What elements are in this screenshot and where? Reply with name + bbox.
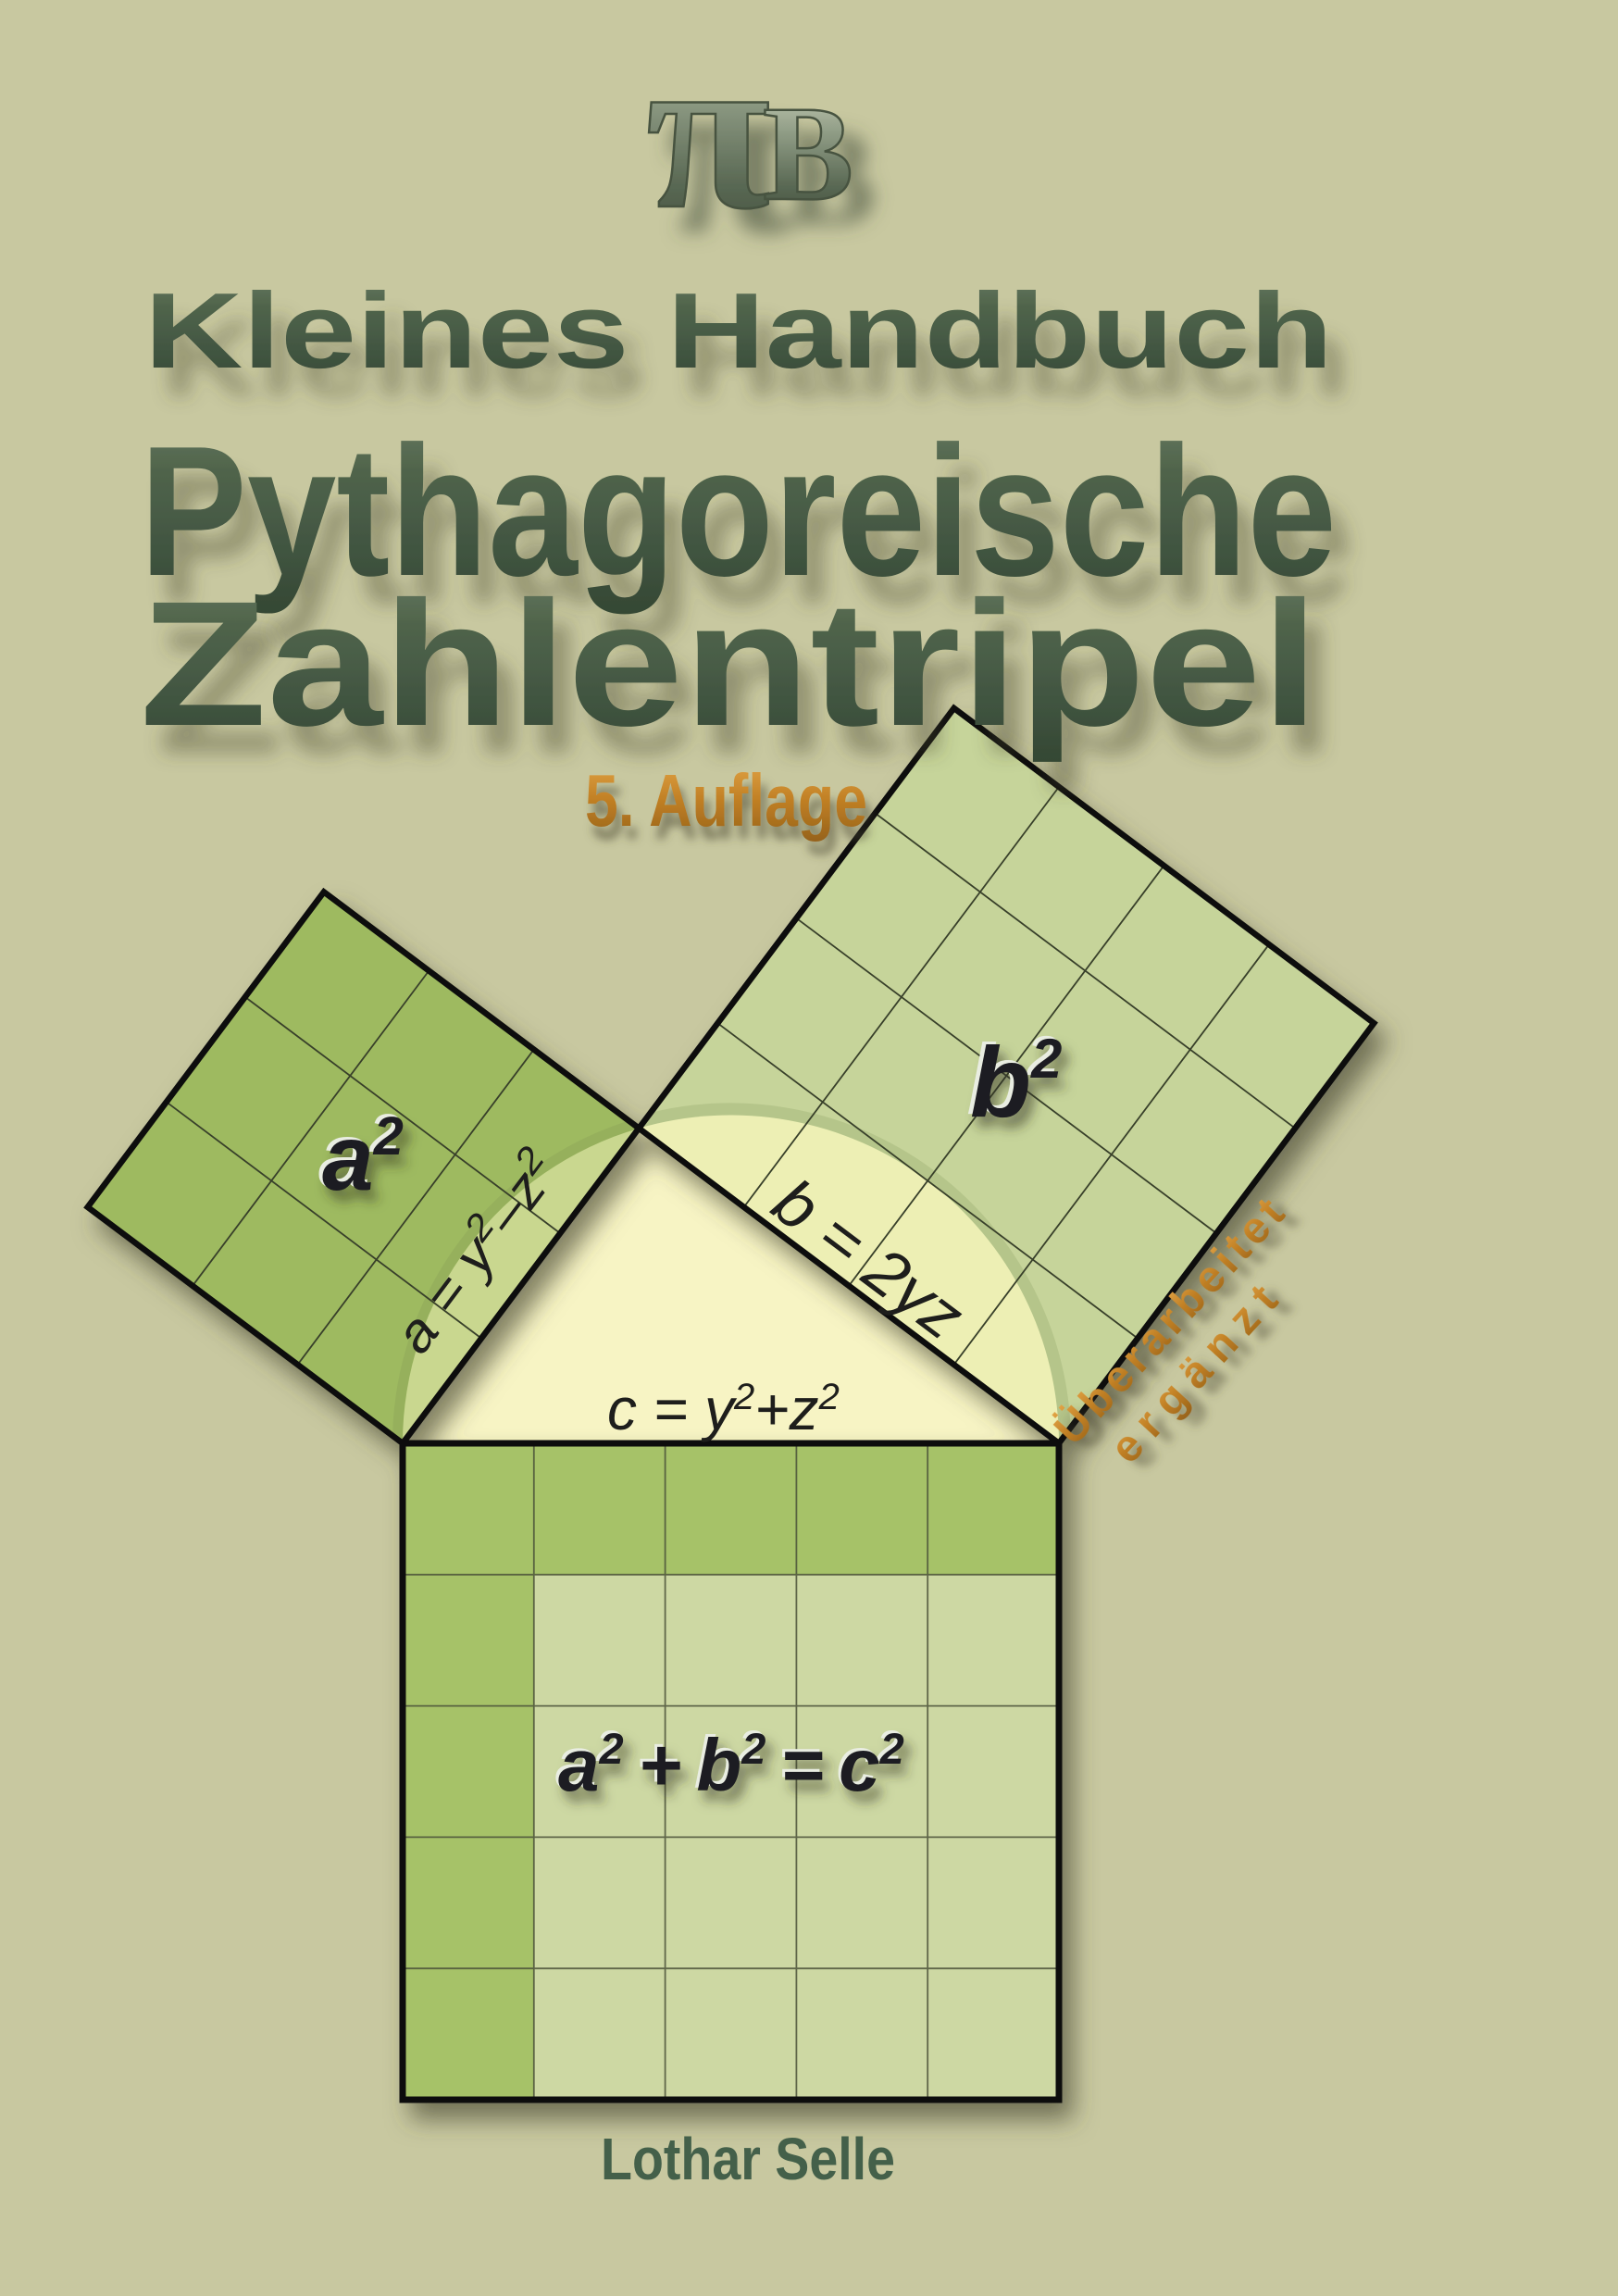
svg-text:Zahlentripel: Zahlentripel: [140, 564, 1319, 763]
svg-text:B: B: [763, 78, 853, 229]
svg-text:c = y2+z2: c = y2+z2: [607, 1376, 840, 1442]
svg-text:Kleines Handbuch: Kleines Handbuch: [144, 270, 1333, 391]
svg-text:π: π: [646, 5, 770, 256]
svg-text:Lothar Selle: Lothar Selle: [601, 2126, 895, 2192]
svg-text:5. Auflage: 5. Auflage: [585, 759, 867, 842]
